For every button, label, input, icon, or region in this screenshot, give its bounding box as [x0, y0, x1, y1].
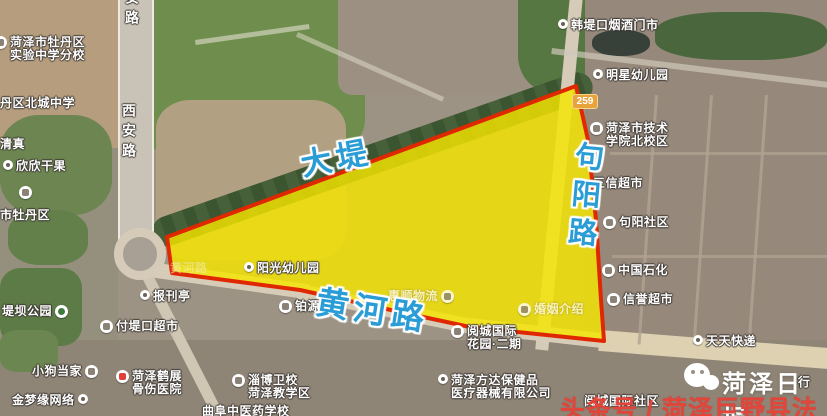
unlabeled-poi-icon — [19, 186, 32, 199]
poi-fangda-company: 菏泽方达保健品医疗器械有限公司 — [438, 374, 551, 400]
wechat-icon-eye — [691, 370, 695, 374]
poi-diba-park: 堤坝公园 — [2, 305, 68, 318]
poi-fudikou-supermarket: 付堤口超市 — [100, 320, 179, 333]
poi-xinxin-driedfruit: 欣欣干果 — [3, 160, 66, 173]
poi-dot-icon — [593, 69, 603, 79]
hospital-cross-icon — [116, 370, 129, 383]
faded-road-label: 黄河路 — [170, 262, 208, 275]
poi-dot-icon — [438, 374, 448, 384]
supermarket-icon — [607, 293, 620, 306]
poi-tiantian-express: 天天快递 — [693, 335, 756, 348]
poi-mudan-district-partial: 市牡丹区 — [0, 209, 50, 222]
poi-sinopec: 中国石化 — [602, 264, 668, 277]
school-icon — [0, 36, 7, 49]
poi-puppy-home: 小狗当家 — [32, 365, 98, 378]
poi-mosque-partial: 清真 — [0, 138, 25, 151]
poi-jinmengyuan-network: 金梦缘网络 — [12, 394, 88, 407]
poi-xinyu-supermarket: 信誉超市 — [607, 293, 673, 306]
route-shield-259: 259 — [572, 94, 598, 109]
logistics-icon — [441, 290, 454, 303]
poi-dot-icon — [140, 290, 150, 300]
xian-road-label-top: 西安路 — [122, 0, 142, 30]
poi-mingxing-kindergarten: 明星幼儿园 — [593, 69, 669, 82]
supermarket-icon — [100, 320, 113, 333]
gas-station-icon — [602, 264, 615, 277]
wechat-icon-small — [703, 375, 719, 390]
poi-yuecheng-garden: 阅城国际花园·二期 — [451, 325, 522, 351]
poi-dot-icon — [78, 394, 88, 404]
poi-zibo-health-school: 淄博卫校菏泽教学区 — [232, 374, 311, 400]
school-icon — [232, 374, 245, 387]
college-icon — [590, 122, 603, 135]
source-watermark: 头条号 / 菏泽巨野县法院 — [560, 390, 827, 416]
residence-icon — [451, 325, 464, 338]
poi-hezhan-hospital: 菏泽鹤展骨伤医院 — [116, 370, 182, 396]
park-tree-icon — [55, 305, 68, 318]
pet-paw-icon — [85, 365, 98, 378]
service-icon — [518, 303, 531, 316]
poi-beicheng-school: 丹区北城中学 — [0, 97, 75, 110]
hotel-icon — [279, 300, 292, 313]
poi-newsstand: 报刊亭 — [140, 290, 191, 303]
highlight-region — [0, 0, 827, 416]
poi-marriage-agency: 婚姻介绍 — [518, 303, 584, 316]
xian-road-label-mid: 西安路 — [119, 103, 139, 163]
community-icon — [603, 216, 616, 229]
poi-experimental-school: 菏泽市牡丹区实验中学分校 — [0, 36, 85, 62]
satellite-map: 西安路 西安路 菏泽市牡丹区实验中学分校 丹区北城中学 韩堤口烟酒门市 明星幼儿… — [0, 0, 827, 416]
poi-sunshine-kindergarten: 阳光幼儿园 — [244, 262, 320, 275]
wechat-icon-eye — [700, 370, 704, 374]
poi-tcm-school: 曲阜中医药学校 — [202, 405, 290, 416]
poi-dot-icon — [244, 262, 254, 272]
poi-dot-icon — [558, 19, 568, 29]
poi-juyang-community: 句阳社区 — [603, 216, 669, 229]
poi-dot-icon — [3, 160, 13, 170]
poi-handikou-store: 韩堤口烟酒门市 — [558, 19, 659, 32]
poi-dot-icon — [693, 335, 703, 345]
